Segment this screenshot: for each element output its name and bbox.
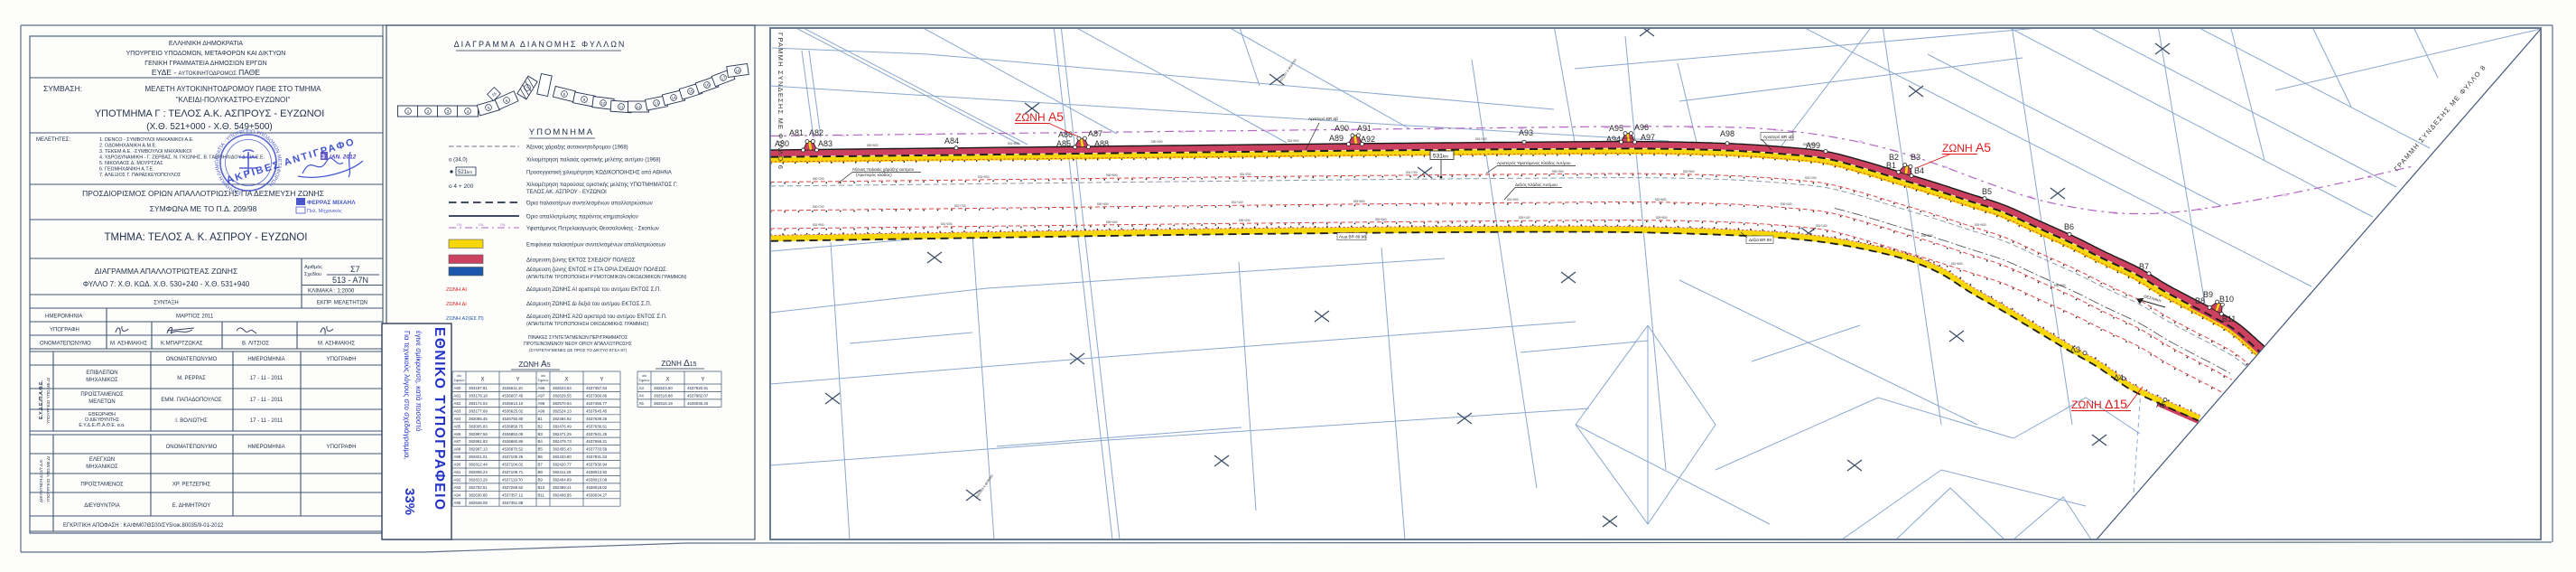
svg-text:383174.04: 383174.04 (469, 401, 488, 406)
svg-text:383005.83: 383005.83 (469, 424, 488, 428)
svg-text:ΠΡΟΪΣΤΑΜΕΝΟΣ: ΠΡΟΪΣΤΑΜΕΝΟΣ (80, 391, 124, 398)
svg-text:382813.29: 382813.29 (469, 478, 488, 483)
svg-text:4537636.61: 4537636.61 (586, 424, 608, 428)
svg-text:ΖΩΝΗ ΑΙ: ΖΩΝΗ ΑΙ (446, 287, 467, 293)
svg-text:X: X (480, 378, 484, 383)
svg-text:4538034.27: 4538034.27 (586, 492, 608, 497)
svg-text:ΟΙL: ΟΙL (2198, 207, 2204, 211)
svg-text:Επιφάνεια παλαιοτέρων συντελεσ: Επιφάνεια παλαιοτέρων συντελεσμένων απαλ… (526, 242, 665, 248)
svg-text:Λ4: Λ4 (2114, 373, 2124, 382)
svg-text:ΠΡΟΤΕΙΝΟΜΕΝΟΥ ΝΕΟΥ ΟΡΙΟΥ ΑΠ: ΠΡΟΤΕΙΝΟΜΕΝΟΥ ΝΕΟΥ ΟΡΙΟΥ ΑΠΑΛΛΟΤΡΙΩΣΗΣ (524, 342, 632, 347)
svg-text:ΚΛΙΜΑΚΑ : 1:2000: ΚΛΙΜΑΚΑ : 1:2000 (308, 288, 355, 295)
svg-text:ΥΠΟΜΝΗΜΑ: ΥΠΟΜΝΗΜΑ (529, 127, 594, 137)
svg-text:A86: A86 (1058, 130, 1073, 139)
svg-text:B1: B1 (538, 417, 544, 421)
svg-text:ΔΙΕΥΘΥΝΣΗ Δ12/Γ.Δ.Ε.: ΔΙΕΥΘΥΝΣΗ Δ12/Γ.Δ.Ε. (39, 458, 43, 502)
svg-text:ΟΙL: ΟΙL (1179, 129, 1186, 134)
svg-text:B10: B10 (538, 485, 545, 490)
svg-text:531+100: 531+100 (1805, 176, 1817, 180)
svg-text:ΔΙΑΓΡΑΜΜΑ ΔΙΑΝΟΜΗΣ ΦΥΛΛΩΝ: ΔΙΑΓΡΑΜΜΑ ΔΙΑΝΟΜΗΣ ΦΥΛΛΩΝ (454, 40, 627, 49)
svg-text:ΗΜΕΡΟΜΗΝΙΑ: ΗΜΕΡΟΜΗΝΙΑ (247, 357, 284, 362)
svg-text:4536860.86: 4536860.86 (502, 439, 524, 444)
svg-text:ΣΥΜΒΑΣΗ:: ΣΥΜΒΑΣΗ: (43, 84, 82, 93)
svg-text:ΔΙΕΥΘΥΝΤΡΙΑ: ΔΙΕΥΘΥΝΤΡΙΑ (84, 503, 120, 509)
svg-text:έγινε σμίκρυνση, κατά ποσοστό: έγινε σμίκρυνση, κατά ποσοστό (414, 331, 423, 432)
svg-text:382629.55: 382629.55 (553, 394, 572, 399)
svg-text:A91: A91 (454, 470, 461, 474)
svg-text:ΟΙL: ΟΙL (1009, 131, 1016, 136)
svg-text:Σ7: Σ7 (350, 265, 360, 274)
svg-text:ΟΙL: ΟΙL (1688, 125, 1695, 129)
svg-text:α/α: α/α (457, 374, 461, 378)
svg-text:Άξονας χάραξης αυτοκινητοδρομο: Άξονας χάραξης αυτοκινητοδρομου (1968) (526, 145, 628, 151)
svg-text:513 - Α7Ν: 513 - Α7Ν (332, 276, 368, 285)
svg-text:o (34.0): o (34.0) (449, 158, 468, 164)
svg-text:531+600: 531+600 (1951, 262, 1963, 266)
svg-text:ΜΕΛΕΤΗΤΕΣ:: ΜΕΛΕΤΗΤΕΣ: (36, 137, 70, 143)
svg-text:4538018.02: 4538018.02 (586, 485, 608, 490)
svg-text:4537357.12: 4537357.12 (502, 492, 524, 497)
svg-text:Όριο απαλλοτρίωσης παρόντος κτ: Όριο απαλλοτρίωσης παρόντος κτηματολογίο… (525, 214, 638, 220)
svg-text:Για τεχνικούς λόγους στο σχεδι: Για τεχνικούς λόγους στο σχεδιάγραμμα, (403, 331, 411, 460)
svg-text:4537357.53: 4537357.53 (586, 386, 608, 390)
svg-text:11: 11 (618, 105, 624, 109)
svg-text:529+400: 529+400 (1106, 220, 1118, 224)
svg-text:A84: A84 (454, 417, 461, 421)
svg-text:ΣΥΝΤΑΞΗ: ΣΥΝΤΑΞΗ (153, 301, 179, 306)
svg-text:ΟΙL: ΟΙL (2283, 192, 2289, 197)
svg-text:382524.13: 382524.13 (553, 408, 572, 413)
svg-text:382471.25: 382471.25 (553, 432, 572, 436)
svg-text:4536858.75: 4536858.75 (502, 424, 524, 428)
svg-text:530+200: 530+200 (1781, 202, 1792, 206)
svg-text:A85: A85 (1056, 139, 1071, 148)
svg-text:ΤΕΛΟΣ ΑΚ. ΑΣΠΡΟΥ - ΕΥΖΩΝΟΙ: ΤΕΛΟΣ ΑΚ. ΑΣΠΡΟΥ - ΕΥΖΩΝΟΙ (526, 190, 607, 195)
svg-text:B7: B7 (2139, 262, 2149, 271)
svg-text:17 - 11 - 2011: 17 - 11 - 2011 (250, 418, 284, 424)
svg-text:A98: A98 (1720, 129, 1734, 138)
svg-text:4537656.21: 4537656.21 (586, 439, 608, 444)
svg-text:A96: A96 (538, 386, 545, 390)
svg-text:Δέσμευση ζώνης ΕΚΤΟΣ ΣΧΕΔΙΟΥ Π: Δέσμευση ζώνης ΕΚΤΟΣ ΣΧΕΔΙΟΥ ΠΟΛΕΩΣ (526, 258, 636, 264)
svg-text:B9: B9 (538, 478, 544, 483)
svg-text:ΟΙL: ΟΙL (457, 223, 462, 227)
svg-text:530+500: 530+500 (1375, 218, 1387, 221)
svg-text:529+800: 529+800 (1353, 200, 1365, 203)
svg-text:3. ΤΕΚΕΜ Α.Ε. -ΣΥΜΒΟΥΛΟΙ ΜΗΧΑ: 3. ΤΕΚΕΜ Α.Ε. -ΣΥΜΒΟΥΛΟΙ ΜΗΧΑΝΙΚΟΙ (99, 149, 191, 155)
svg-text:ΥΠΟΥΡΓΕΙΟ ΥΠΟΔΟΜΩΝ, ΜΕΤΑΦΟΡΩΝ: ΥΠΟΥΡΓΕΙΟ ΥΠΟΔΟΜΩΝ, ΜΕΤΑΦΟΡΩΝ ΚΑΙ ΔΙΚΤΥΩ… (126, 51, 286, 57)
svg-text:382702.51: 382702.51 (469, 485, 488, 490)
svg-text:4537930.94: 4537930.94 (586, 463, 608, 467)
svg-text:529+100: 529+100 (1519, 216, 1530, 220)
svg-text:(ΣΥΝΤΕΤΑΓΜΕΝΕΣ ΩΣ ΠΡΟΣ ΤΟ: (ΣΥΝΤΕΤΑΓΜΕΝΕΣ ΩΣ ΠΡΟΣ ΤΟ ΔΙΚΤΥΟ ΕΓΣΑ 87… (529, 348, 627, 352)
svg-text:4537104.02: 4537104.02 (502, 463, 524, 467)
svg-text:B5: B5 (538, 447, 544, 452)
svg-text:4537920.91: 4537920.91 (687, 386, 709, 390)
svg-text:X: X (564, 378, 568, 383)
svg-text:382516.19: 382516.19 (654, 401, 673, 406)
svg-text:4537109.26: 4537109.26 (502, 455, 524, 459)
svg-text:ΠΡΟΪΣΤΑΜΕΝΟΣ: ΠΡΟΪΣΤΑΜΕΝΟΣ (80, 482, 124, 488)
svg-text:A89: A89 (454, 455, 461, 459)
svg-text:A94: A94 (1606, 135, 1621, 144)
svg-text:Λ3: Λ3 (639, 386, 645, 390)
svg-text:A90: A90 (454, 463, 461, 467)
svg-text:ΟΝΟΜΑΤΕΠΩΝΥΜΟ: ΟΝΟΜΑΤΕΠΩΝΥΜΟ (40, 342, 91, 347)
svg-text:A87: A87 (1088, 129, 1102, 138)
svg-text:B5: B5 (1982, 187, 1992, 196)
svg-text:4537641.25: 4537641.25 (586, 432, 608, 436)
svg-text:4536853.09: 4536853.09 (502, 432, 524, 436)
svg-text:383187.91: 383187.91 (469, 386, 488, 390)
svg-text:530+700: 530+700 (813, 205, 824, 209)
svg-text:Σημείων: Σημείων (538, 379, 549, 382)
svg-text:B11: B11 (2222, 314, 2236, 324)
svg-text:382628.09: 382628.09 (469, 501, 488, 505)
svg-text:5. ΝΙΚΟΛΑΟΣ Δ. ΜΟΥΡΤΖΑΣ: 5. ΝΙΚΟΛΑΟΣ Δ. ΜΟΥΡΤΖΑΣ (99, 161, 163, 166)
svg-text:ΟΙL: ΟΙL (1858, 139, 1865, 144)
svg-text:Αριθμός: Αριθμός (304, 264, 322, 270)
svg-text:531+200: 531+200 (941, 222, 953, 226)
svg-text:A92: A92 (454, 478, 461, 483)
svg-text:Κ.ΜΠΑΡΤΖΩΚΑΣ: Κ.ΜΠΑΡΤΖΩΚΑΣ (161, 342, 203, 347)
svg-text:A84: A84 (944, 136, 959, 145)
svg-text:382812.44: 382812.44 (469, 463, 488, 467)
svg-text:ΕΛΛΗΝΙΚΗ ΔΗΜΟΚΡΑΤΙΑ: ΕΛΛΗΝΙΚΗ ΔΗΜΟΚΡΑΤΙΑ (169, 41, 244, 47)
svg-text:ΕΚΠΡ. ΜΕΛΕΤΗΤΩΝ: ΕΚΠΡ. ΜΕΛΕΤΗΤΩΝ (317, 301, 367, 306)
svg-text:383178.18: 383178.18 (469, 394, 488, 399)
svg-text:4536607.45: 4536607.45 (502, 394, 524, 399)
svg-text:Δέσμευση ΖΩΝΗΣ Α2Ο αριστερά: Δέσμευση ΖΩΝΗΣ Α2Ο αριστερά του αντ/μου … (526, 314, 667, 320)
svg-text:4537982.07: 4537982.07 (687, 394, 709, 399)
svg-text:ΕΛΕΓΧΩΝ: ΕΛΕΓΧΩΝ (89, 457, 115, 463)
svg-text:ΥΠΟΓΡΑΦΗ: ΥΠΟΓΡΑΦΗ (327, 445, 357, 450)
svg-text:B6: B6 (538, 455, 544, 459)
svg-text:B4: B4 (1914, 166, 1924, 175)
svg-text:4537109.71: 4537109.71 (502, 470, 524, 474)
svg-text:382408.95: 382408.95 (553, 492, 572, 497)
svg-text:Ε. ΔΗΜΗΤΡΙΟΥ: Ε. ΔΗΜΗΤΡΙΟΥ (172, 503, 211, 509)
svg-text:530+200: 530+200 (1151, 140, 1163, 144)
svg-text:531+500: 531+500 (978, 175, 990, 179)
svg-text:α/α: α/α (541, 374, 545, 378)
svg-text:Άξονας παλαιάς χάραξης αυτ/μου: Άξονας παλαιάς χάραξης αυτ/μου (852, 166, 915, 173)
svg-text:ΟΙL: ΟΙL (2028, 194, 2034, 199)
svg-text:ΟΙL: ΟΙL (925, 132, 931, 136)
svg-text:B9: B9 (2203, 290, 2213, 299)
svg-text:382420.77: 382420.77 (553, 463, 572, 467)
svg-text:Β. ΛΙΤΣΙΟΣ: Β. ΛΙΤΣΙΟΣ (242, 342, 269, 347)
svg-text:12: 12 (636, 105, 641, 109)
svg-text:530+800: 530+800 (1921, 234, 1933, 238)
svg-text:531+200: 531+200 (1240, 173, 1251, 176)
svg-text:531+100: 531+100 (1232, 201, 1243, 204)
svg-text:4538013.82: 4538013.82 (586, 470, 608, 474)
svg-text:ΟΙL: ΟΙL (1434, 127, 1440, 131)
svg-text:Αριστερό BR αβ: Αριστερό BR αβ (1308, 116, 1338, 121)
svg-text:382455.43: 382455.43 (553, 447, 572, 452)
svg-text:(ΑΠΑΙΤΕΙΤΑΙ ΤΡΟΠΟΠΟΙΗΣΗ ΡΥΜΟΤΟ: (ΑΠΑΙΤΕΙΤΑΙ ΤΡΟΠΟΠΟΙΗΣΗ ΡΥΜΟΤΟΜΙΚΩΝ-ΟΙΚΟ… (526, 275, 687, 280)
svg-text:ΜΕΛΕΤΗ ΑΥΤΟΚΙΝΗΤΟΔΡΟΜΟΥ ΠΑΘΕ Σ: ΜΕΛΕΤΗ ΑΥΤΟΚΙΝΗΤΟΔΡΟΜΟΥ ΠΑΘΕ ΣΤΟ ΤΜΗΜΑ (144, 85, 321, 93)
svg-text:4537119.70: 4537119.70 (502, 478, 523, 483)
svg-text:A81: A81 (789, 128, 804, 137)
svg-text:Μ. ΡΕΡΡΑΣ: Μ. ΡΕΡΡΑΣ (177, 376, 206, 381)
svg-text:ΟΝΟΜΑΤΕΠΩΝΥΜΟ: ΟΝΟΜΑΤΕΠΩΝΥΜΟ (166, 357, 218, 362)
svg-text:ΥΠΟΓΡΑΦΗ: ΥΠΟΓΡΑΦΗ (327, 357, 357, 362)
svg-text:ΔΙΑΓΡΑΜΜΑ ΑΠΑΛΛΟΤΡΙΩΤΕΑΣ ΖΩΝΗΣ: ΔΙΑΓΡΑΜΜΑ ΑΠΑΛΛΟΤΡΙΩΤΕΑΣ ΖΩΝΗΣ (95, 267, 237, 276)
svg-text:4538013.08: 4538013.08 (586, 478, 608, 483)
svg-text:383085.45: 383085.45 (469, 417, 488, 421)
svg-text:531+500: 531+500 (1975, 223, 1986, 227)
svg-text:530+500: 530+500 (867, 144, 879, 147)
svg-text:ΖΩΝΗ Α2(ΕΣ.Π): ΖΩΝΗ Α2(ΕΣ.Π) (446, 316, 484, 322)
svg-text:ΥΠΟΓΡΑΦΗ: ΥΠΟΓΡΑΦΗ (50, 328, 79, 333)
svg-text:382623.84: 382623.84 (553, 386, 572, 390)
svg-text:ΖΩΝΗ Α5: ΖΩΝΗ Α5 (1015, 109, 1064, 124)
svg-text:4537456.77: 4537456.77 (586, 401, 608, 406)
svg-text:382404.89: 382404.89 (553, 478, 572, 483)
svg-text:531+900: 531+900 (1288, 139, 1299, 143)
svg-text:33%: 33% (402, 488, 417, 515)
svg-text:Χιλιομέτρηση παρούσας οριστική: Χιλιομέτρηση παρούσας οριστικής μελέτης … (526, 182, 678, 188)
svg-text:Πολ. Μηχανικός: Πολ. Μηχανικός (307, 208, 342, 214)
svg-text:ΥΠΟΥΡΓΕΙΟ ΥΠΟ.ΜΕ.ΔΙ: ΥΠΟΥΡΓΕΙΟ ΥΠΟ.ΜΕ.ΔΙ (46, 378, 51, 424)
svg-text:A91: A91 (1357, 124, 1372, 133)
svg-text:17 - 11 - 2011: 17 - 11 - 2011 (250, 398, 284, 403)
svg-text:B1: B1 (1886, 161, 1896, 170)
svg-text:382570.94: 382570.94 (553, 401, 572, 406)
svg-text:Προσεγγιστική χιλιομέτρηση ΚΩΔ: Προσεγγιστική χιλιομέτρηση ΚΩΔΙΚΟΠΟΙΗΣΗΣ… (526, 170, 672, 176)
svg-text:A94: A94 (454, 492, 461, 497)
svg-text:ΦΥΛΛΟ 7: Χ.Θ. ΚΩΔ. Χ.Θ. 530+2: ΦΥΛΛΟ 7: Χ.Θ. ΚΩΔ. Χ.Θ. 530+240 - Χ.Θ. 5… (83, 280, 250, 288)
svg-text:B7: B7 (538, 463, 544, 467)
svg-text:4538036.20: 4538036.20 (687, 401, 709, 406)
svg-text:2. ΟΔΟΜΗΧΑΝΙΚΗ Α.Μ.Ε.: 2. ΟΔΟΜΗΧΑΝΙΚΗ Α.Μ.Ε. (99, 144, 157, 149)
svg-text:382433.80: 382433.80 (553, 455, 572, 459)
svg-text:3: 3 (321, 155, 325, 161)
svg-text:A83: A83 (454, 408, 461, 413)
svg-text:ΖΩΝΗ Α5: ΖΩΝΗ Α5 (518, 360, 550, 370)
svg-text:Υφιστάμενος Πετρελαιαγωγός Θε: Υφιστάμενος Πετρελαιαγωγός Θεσσαλονίκης … (526, 226, 659, 232)
svg-text:Μ. ΑΣΗΜΑΚΗΣ: Μ. ΑΣΗΜΑΚΗΣ (110, 342, 147, 347)
svg-text:B8: B8 (538, 470, 544, 474)
svg-text:B10: B10 (2219, 295, 2234, 304)
svg-text:382997.13: 382997.13 (469, 447, 488, 452)
svg-text:531+100: 531+100 (1816, 224, 1827, 228)
svg-text:531+800: 531+800 (1008, 142, 1019, 145)
svg-text:ΟΙL: ΟΙL (1773, 127, 1780, 132)
svg-text:Y: Y (701, 378, 704, 383)
svg-text:ΠΙΝΑΚΕΣ ΣΥΝΤΕΤΑΓΜΕΝΩΝ ΠΕΡΙΓΡ: ΠΙΝΑΚΕΣ ΣΥΝΤΕΤΑΓΜΕΝΩΝ ΠΕΡΙΓΡΑΜΜΑΤΟΣ (528, 335, 628, 341)
svg-text:530+200: 530+200 (1803, 143, 1815, 146)
svg-text:Y: Y (600, 378, 603, 383)
svg-text:ΓΡΑΜΜΗ ΣΥΝΔΕΣΗΣ ΜΕ ΦΥΛΛΟ 6: ΓΡΑΜΜΗ ΣΥΝΔΕΣΗΣ ΜΕ ΦΥΛΛΟ 6 (777, 33, 785, 170)
svg-text:ΜΕΛΕΤΩΝ: ΜΕΛΕΤΩΝ (88, 399, 115, 405)
svg-text:529+500: 529+500 (1656, 216, 1668, 220)
svg-text:1. DENCO - ΣΥΜΒΟΥΛΟΙ ΜΗΧΑΝΙΚΟ: 1. DENCO - ΣΥΜΒΟΥΛΟΙ ΜΗΧΑΝΙΚΟΙ Α.Ε. (99, 137, 194, 143)
svg-text:A97: A97 (538, 394, 545, 399)
svg-text:530+500: 530+500 (1106, 173, 1118, 177)
svg-text:A93: A93 (1519, 128, 1533, 137)
svg-text:X: X (665, 378, 669, 383)
svg-text:ΥΠΟΤΜΗΜΑ Γ : ΤΕΛΟΣ Α.Κ. ΑΣΠΡΟΥ: ΥΠΟΤΜΗΜΑ Γ : ΤΕΛΟΣ Α.Κ. ΑΣΠΡΟΥΣ - ΕΥΖΩΝΟ… (95, 108, 325, 119)
svg-text:Λωρ.BR 89.98: Λωρ.BR 89.98 (1339, 235, 1366, 239)
svg-text:ΟΙL: ΟΙL (1264, 128, 1270, 133)
svg-text:Αριστερός Υφιστάμενος Κλάδος Α: Αριστερός Υφιστάμενος Κλάδος Αυτ/μου (1497, 160, 1571, 165)
svg-text:ΟΙL: ΟΙL (479, 223, 484, 227)
svg-text:4537733.59: 4537733.59 (586, 447, 608, 452)
svg-text:382399.41: 382399.41 (553, 485, 572, 490)
svg-text:A90: A90 (1334, 124, 1349, 133)
svg-text:(ΑΠΑΙΤΕΙΤΑΙ ΤΡΟΠΟΠΟΙΗΣΗ ΟΙΚΟΔΟ: (ΑΠΑΙΤΕΙΤΑΙ ΤΡΟΠΟΠΟΙΗΣΗ ΟΙΚΟΔΟΜΙΚΗΣ ΓΡΑΜ… (526, 322, 648, 327)
svg-text:ΟΙL: ΟΙL (1349, 127, 1355, 132)
svg-text:530+100: 530+100 (813, 177, 824, 181)
svg-text:4536613.10: 4536613.10 (502, 401, 524, 406)
svg-text:382411.29: 382411.29 (553, 470, 572, 474)
svg-text:B2: B2 (538, 424, 544, 428)
svg-text:α/α: α/α (642, 374, 646, 378)
svg-text:A80: A80 (454, 386, 461, 390)
svg-text:A82: A82 (454, 401, 461, 406)
svg-text:A99: A99 (538, 408, 545, 413)
svg-text:B6: B6 (2064, 222, 2074, 231)
svg-text:530+400: 530+400 (1097, 202, 1109, 206)
svg-text:B3: B3 (538, 432, 544, 436)
svg-text:A81: A81 (454, 394, 461, 399)
svg-text:A95: A95 (454, 501, 461, 505)
svg-text:ΟΙL: ΟΙL (1943, 164, 1949, 169)
svg-text:4536750.80: 4536750.80 (502, 417, 524, 421)
svg-text:ΖΩΝΗ Δi: ΖΩΝΗ Δi (446, 302, 467, 307)
svg-text:ΟΙL: ΟΙL (500, 223, 506, 227)
svg-text:A98: A98 (538, 401, 545, 406)
svg-text:ΜΑΡΤΙΟΣ 2011: ΜΑΡΤΙΟΣ 2011 (176, 314, 214, 320)
svg-text:382479.73: 382479.73 (553, 439, 572, 444)
svg-text:ΦΕΡΡΑΣ ΜΙΧΑΗΛ: ΦΕΡΡΑΣ ΜΙΧΑΗΛ (307, 200, 356, 206)
svg-text:530+600: 530+600 (2054, 284, 2066, 287)
svg-text:531+900: 531+900 (813, 223, 824, 227)
svg-text:A96: A96 (1634, 123, 1649, 132)
svg-text:B4: B4 (538, 439, 544, 444)
svg-text:Ε.Υ.Δ.Ε./Π.Α.Θ.Ε.: Ε.Υ.Δ.Ε./Π.Α.Θ.Ε. (39, 380, 44, 419)
svg-text:B2: B2 (1889, 153, 1899, 162)
svg-text:Σημείων: Σημείων (639, 379, 650, 382)
svg-text:A92: A92 (1361, 135, 1375, 144)
svg-text:ΕΘΝΙΚΟ ΤΥΠΟΓΡΑΦΕΙΟ: ΕΘΝΙΚΟ ΤΥΠΟΓΡΑΦΕΙΟ (432, 327, 447, 511)
svg-text:Ι. ΒΟΛΙΩΤΗΣ: Ι. ΒΟΛΙΩΤΗΣ (175, 418, 208, 424)
svg-text:A87: A87 (454, 439, 461, 444)
svg-text:A85: A85 (454, 424, 461, 428)
svg-text:Δέσμευση ζώνης ΕΝΤΟΣ Η ΣΤΑ ΟΡΙ: Δέσμευση ζώνης ΕΝΤΟΣ Η ΣΤΑ ΟΡΙΑ ΣΧΕΔΙΟΥ … (526, 267, 666, 273)
svg-text:(Αριστερός κλάδος): (Αριστερός κλάδος) (856, 172, 892, 177)
svg-text:A88: A88 (1094, 139, 1109, 148)
svg-text:A95: A95 (1609, 124, 1623, 133)
svg-text:6. ΓΕΩΜΗΧΑΝΙΚΗ Α.Τ.Ε.: 6. ΓΕΩΜΗΧΑΝΙΚΗ Α.Τ.Ε. (99, 167, 154, 173)
svg-text:531+700: 531+700 (1406, 171, 1418, 174)
svg-text:A86: A86 (454, 432, 461, 436)
svg-text:ΟΝΟΜΑΤΕΠΩΝΥΜΟ: ΟΝΟΜΑΤΕΠΩΝΥΜΟ (166, 445, 218, 450)
svg-text:382997.56: 382997.56 (469, 432, 488, 436)
svg-text:o 4 + 200: o 4 + 200 (449, 183, 474, 190)
svg-text:ΣΥΜΦΩΝΑ ΜΕ ΤΟ Π.Δ. 209/98: ΣΥΜΦΩΝΑ ΜΕ ΤΟ Π.Δ. 209/98 (150, 204, 257, 213)
svg-text:382523.50: 382523.50 (654, 386, 673, 390)
svg-text:Λ5: Λ5 (639, 401, 645, 406)
svg-text:ΖΩΝΗ Α5: ΖΩΝΗ Α5 (1942, 140, 1991, 155)
svg-text:Λ3: Λ3 (2070, 345, 2080, 354)
svg-text:A97: A97 (1641, 133, 1655, 142)
svg-text:4537351.88: 4537351.88 (502, 501, 524, 505)
svg-text:382991.83: 382991.83 (469, 439, 488, 444)
svg-text:383177.69: 383177.69 (469, 408, 488, 413)
svg-text:Ε.Υ.Δ.Ε./Π.Α.Θ.Ε. α.α.: Ε.Υ.Δ.Ε./Π.Α.Θ.Ε. α.α. (79, 423, 125, 428)
svg-text:382518.88: 382518.88 (654, 394, 673, 399)
svg-text:530+300: 530+300 (1552, 170, 1564, 173)
svg-text:"ΚΛΕΙΔΙ-ΠΟΛΥΚΑΣΤΡΟ-ΕΥΖΩΝΟΙ": "ΚΛΕΙΔΙ-ΠΟΛΥΚΑΣΤΡΟ-ΕΥΖΩΝΟΙ" (176, 96, 291, 104)
svg-text:4537269.52: 4537269.52 (502, 485, 524, 490)
svg-text:4537366.86: 4537366.86 (586, 394, 608, 399)
svg-text:ΧΡ. ΡΕΤΖΕΠΗΣ: ΧΡ. ΡΕΤΖΕΠΗΣ (172, 483, 211, 488)
svg-text:ΕΓΚΡΙΤΙΚΗ ΑΠΟΦΑΣΗ : ΚΑ/ΦΜ07: ΕΓΚΡΙΤΙΚΗ ΑΠΟΦΑΣΗ : ΚΑ/ΦΜ07ΘΣ00/ΣΥ5/οικ.… (63, 523, 224, 529)
svg-text:Y: Y (516, 378, 519, 383)
svg-text:532+600: 532+600 (1655, 198, 1667, 202)
svg-text:ΗΜΕΡΟΜΗΝΙΑ: ΗΜΕΡΟΜΗΝΙΑ (247, 445, 284, 450)
svg-text:Μ. ΑΣΗΜΑΚΗΣ: Μ. ΑΣΗΜΑΚΗΣ (318, 342, 355, 347)
svg-text:A93: A93 (454, 485, 461, 490)
svg-text:A88: A88 (454, 447, 461, 452)
svg-text:Δέσμευση ΖΩΝΗΣ Δi δεξιά του: Δέσμευση ΖΩΝΗΣ Δi δεξιά του αντ/μου ΕΚΤΟ… (526, 301, 652, 307)
svg-text:A89: A89 (1329, 134, 1344, 143)
svg-text:ΖΩΝΗ Δ15: ΖΩΝΗ Δ15 (2071, 397, 2127, 411)
svg-text:382821.01: 382821.01 (469, 455, 488, 459)
svg-text:382636.66: 382636.66 (469, 492, 488, 497)
svg-text:ΕΠΙΒΛΕΠΩΝ: ΕΠΙΒΛΕΠΩΝ (86, 370, 117, 376)
svg-text:4537831.53: 4537831.53 (586, 455, 608, 459)
svg-text:531km: 531km (1433, 154, 1448, 160)
svg-text:Δέσμευση ΖΩΝΗΣ ΑΙ αριστερά: Δέσμευση ΖΩΝΗΣ ΑΙ αριστερά του αντ/μου Ε… (526, 286, 661, 293)
svg-text:Δεξιός Κλάδος Αυτ/μου: Δεξιός Κλάδος Αυτ/μου (1515, 182, 1558, 188)
svg-text:ΟΙL: ΟΙL (840, 133, 846, 137)
svg-text:B11: B11 (538, 492, 545, 497)
svg-text:ΥΠΟΥΡΓΕΙΟ ΥΠΟ.ΜΕ.ΔΙ: ΥΠΟΥΡΓΕΙΟ ΥΠΟ.ΜΕ.ΔΙ (46, 456, 51, 502)
svg-text:Δεξιά BR 89: Δεξιά BR 89 (1749, 237, 1772, 243)
svg-text:4536611.10: 4536611.10 (502, 386, 523, 390)
svg-text:4537545.45: 4537545.45 (586, 408, 608, 413)
svg-text:ΜΗΧΑΝΙΚΟΣ: ΜΗΧΑΝΙΚΟΣ (86, 464, 118, 470)
svg-text:B3: B3 (1911, 153, 1920, 162)
svg-text:ΜΗΧΑΝΙΚΟΣ: ΜΗΧΑΝΙΚΟΣ (86, 378, 118, 383)
svg-text:531+100: 531+100 (1475, 137, 1487, 141)
svg-text:ΓΕΝΙΚΗ ΓΡΑΜΜΑΤΕΙΑ ΔΗΜΟΣΙΩΝ ΕΡΓ: ΓΕΝΙΚΗ ΓΡΑΜΜΑΤΕΙΑ ΔΗΜΟΣΙΩΝ ΕΡΓΩΝ (144, 61, 266, 67)
svg-text:382808.24: 382808.24 (469, 470, 488, 474)
svg-text:Λ5: Λ5 (2156, 400, 2166, 409)
svg-text:A82: A82 (809, 128, 823, 137)
svg-text:531+500: 531+500 (1623, 136, 1635, 140)
svg-text:Αριστερό BR αβ: Αριστερό BR αβ (1763, 134, 1793, 139)
svg-text:7. ΑΛΕΞΙΟΣ Γ. ΠΑΡΑΣΚΕΥΟΠΟΥΛΟΣ: 7. ΑΛΕΞΙΟΣ Γ. ΠΑΡΑΣΚΕΥΟΠΟΥΛΟΣ (99, 173, 181, 178)
svg-text:531+900: 531+900 (1507, 198, 1519, 202)
svg-text:ΠΡΟΣΔΙΟΡΙΣΜΟΣ ΟΡΙΩΝ ΑΠΑΛΛΟΤΡΙΩ: ΠΡΟΣΔΙΟΡΙΣΜΟΣ ΟΡΙΩΝ ΑΠΑΛΛΟΤΡΙΩΣΗΣ ΓΙΑ ΔΕ… (82, 189, 324, 198)
svg-text:ΟΙL: ΟΙL (2113, 211, 2119, 215)
svg-text:530+200: 530+200 (1239, 219, 1251, 222)
svg-text:531+700: 531+700 (954, 204, 966, 208)
svg-text:Λ4: Λ4 (639, 394, 645, 399)
svg-text:Χιλιομέτρηση παλαιάς οριστικής: Χιλιομέτρηση παλαιάς οριστικής μελέτης α… (526, 157, 661, 164)
svg-text:4536870.52: 4536870.52 (502, 447, 524, 452)
svg-text:ΗΜΕΡΟΜΗΝΙΑ: ΗΜΕΡΟΜΗΝΙΑ (45, 314, 82, 320)
svg-text:382484.92: 382484.92 (553, 417, 572, 421)
svg-text:382476.49: 382476.49 (553, 424, 572, 428)
svg-text:ΕΜΜ. ΠΑΠΑΔΟΠΟΥΛΟΣ: ΕΜΜ. ΠΑΠΑΔΟΠΟΥΛΟΣ (161, 398, 221, 403)
